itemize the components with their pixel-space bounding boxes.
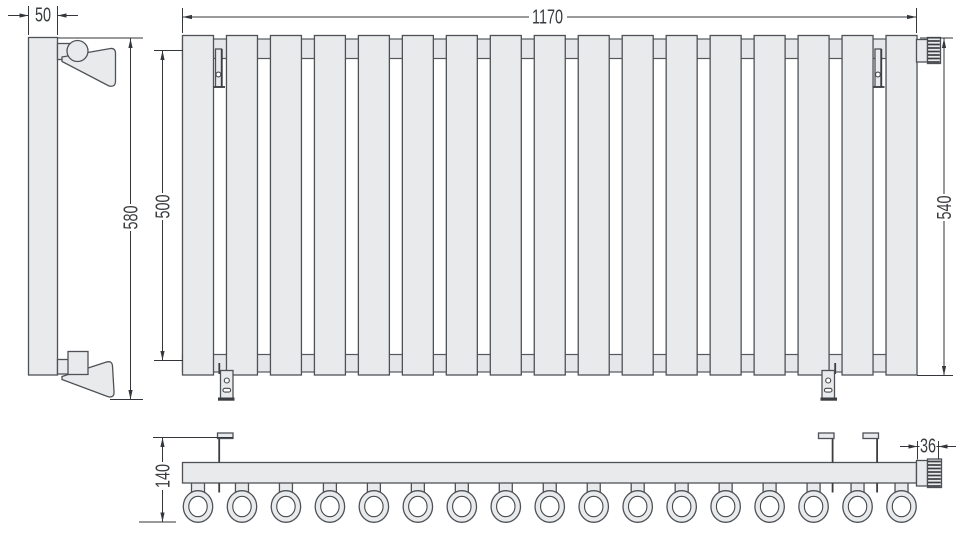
dim-mounting-height: 500 (153, 51, 184, 361)
valve-ribs (928, 41, 940, 62)
dim-valve-width: 36 (900, 436, 956, 460)
radiator-section (842, 36, 873, 376)
tube-ring-inner (453, 496, 471, 516)
radiator-sections (183, 36, 918, 376)
tube-ring-inner (497, 496, 515, 516)
dim-side-depth: 50 (8, 5, 78, 36)
bracket-body (68, 352, 88, 375)
bracket-hook (819, 433, 835, 439)
bottom-view (183, 433, 942, 522)
technical-drawing-canvas: 50 1170 580 (0, 0, 970, 535)
tube-ring-inner (409, 496, 427, 516)
dim-label-valve-width: 36 (920, 436, 936, 458)
radiator-drawing: 50 1170 580 (0, 0, 970, 535)
radiator-section (270, 36, 301, 376)
side-top-bracket (58, 41, 116, 87)
dim-valve-height: 540 (917, 38, 956, 376)
bracket-rail (216, 49, 222, 87)
bracket-hole (876, 72, 881, 77)
side-bottom-bracket (58, 352, 115, 397)
dim-label-side-depth: 50 (35, 5, 51, 27)
bracket-rail (875, 49, 881, 87)
radiator-section (534, 36, 565, 376)
valve-body (917, 461, 928, 487)
radiator-section (226, 36, 257, 376)
dim-label-overall-width: 1170 (532, 7, 563, 29)
bracket-hole (216, 72, 221, 77)
tube-ring-inner (233, 496, 251, 516)
tube-ring-inner (672, 496, 690, 516)
side-view (29, 38, 116, 397)
tube-ring-inner (189, 496, 207, 516)
radiator-section (490, 36, 521, 376)
bracket-pin (67, 41, 88, 62)
tube-ring-inner (277, 496, 295, 516)
tube-ring-inner (541, 496, 559, 516)
radiator-section (666, 36, 697, 376)
valve-body (917, 40, 928, 63)
radiator-section (622, 36, 653, 376)
dim-label-mounting-height: 500 (153, 195, 175, 219)
front-view (183, 36, 941, 401)
bracket-hole (224, 378, 229, 383)
bracket-foot (218, 398, 235, 401)
dim-label-side-height: 580 (121, 206, 143, 230)
dim-side-height: 580 (58, 38, 144, 400)
radiator-section (798, 36, 829, 376)
radiator-section (754, 36, 785, 376)
bracket-hook (863, 433, 879, 439)
valve-bottom (917, 459, 942, 488)
tube-ring-inner (629, 496, 647, 516)
dim-label-top-view-depth: 140 (153, 464, 175, 488)
valve-top (917, 38, 941, 64)
tube-ring-inner (365, 496, 383, 516)
bracket-hole (826, 378, 831, 383)
bracket-foot (821, 398, 838, 401)
bracket-slot (824, 388, 832, 392)
side-panel (29, 38, 58, 376)
tube-ring-inner (892, 496, 910, 516)
radiator-section (710, 36, 741, 376)
tube-ring-inner (321, 496, 339, 516)
tube-ring-inner (585, 496, 603, 516)
radiator-section (886, 36, 917, 376)
bracket-pin-block (58, 360, 69, 375)
radiator-section (578, 36, 609, 376)
bracket-plate (221, 371, 234, 400)
dim-label-valve-height: 540 (934, 196, 956, 220)
bottom-collector (183, 463, 917, 484)
radiator-section (358, 36, 389, 376)
tube-ring-inner (760, 496, 778, 516)
tube-ring-inner (716, 496, 734, 516)
radiator-section (314, 36, 345, 376)
tube-ring-inner (804, 496, 822, 516)
radiator-section (402, 36, 433, 376)
radiator-section (446, 36, 477, 376)
tube-ring-inner (848, 496, 866, 516)
radiator-section (183, 36, 214, 376)
tube-rings (183, 491, 916, 523)
bracket-slot (223, 388, 231, 392)
dim-overall-width: 1170 (183, 7, 917, 34)
bracket-plate (822, 371, 835, 400)
